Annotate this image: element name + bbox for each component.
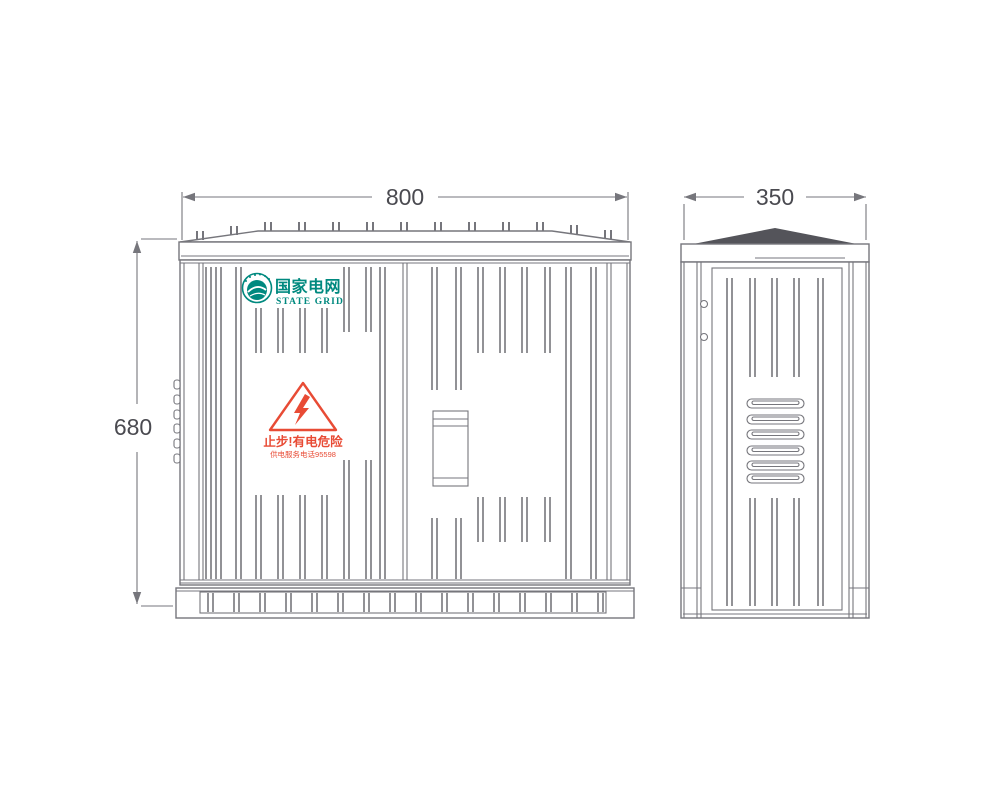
technical-drawing-page: 国家电网 STATE GRID 止步!有电危险 供电服务电话95598 [0, 0, 1000, 800]
side-roof-peak [688, 228, 862, 245]
side-view [681, 228, 869, 618]
front-roof-eave [179, 242, 631, 260]
louver [747, 474, 804, 483]
front-body: 国家电网 STATE GRID 止步!有电危险 供电服务电话95598 [174, 260, 630, 585]
dimension-680: 680 [114, 239, 177, 606]
front-base [176, 588, 634, 618]
hinge [174, 380, 180, 389]
side-roof [681, 228, 869, 262]
side-roof-eave [681, 244, 869, 262]
state-grid-logo: 国家电网 STATE GRID [243, 274, 344, 308]
louver [747, 446, 804, 455]
dim-350-label: 350 [756, 184, 794, 210]
front-roof-slope [180, 231, 630, 242]
louver [747, 461, 804, 470]
hinge [174, 395, 180, 404]
front-roof [179, 222, 631, 260]
screw-hole [701, 334, 708, 341]
hinge [174, 410, 180, 419]
hinge [174, 424, 180, 433]
logo-text-en: STATE GRID [276, 297, 344, 307]
dim-800-label: 800 [386, 184, 424, 210]
door-hinges [174, 380, 180, 463]
logo-text-cn: 国家电网 [275, 277, 341, 296]
louver [747, 399, 804, 408]
front-view: 国家电网 STATE GRID 止步!有电危险 供电服务电话95598 [174, 222, 634, 618]
hinge [174, 454, 180, 463]
lock-plate-outline[interactable] [433, 411, 468, 486]
lock-plate[interactable] [433, 411, 468, 486]
louver [747, 430, 804, 439]
warning-text-line2: 供电服务电话95598 [270, 449, 336, 459]
hinge [174, 439, 180, 448]
side-body-outline [681, 262, 869, 618]
front-body-outline [180, 260, 630, 585]
cabinet-drawing-svg: 国家电网 STATE GRID 止步!有电危险 供电服务电话95598 [0, 0, 1000, 800]
side-body [681, 262, 869, 618]
dim-680-label: 680 [114, 414, 152, 440]
warning-text-line1: 止步!有电危险 [263, 434, 343, 449]
screw-hole [701, 301, 708, 308]
louver [747, 415, 804, 424]
